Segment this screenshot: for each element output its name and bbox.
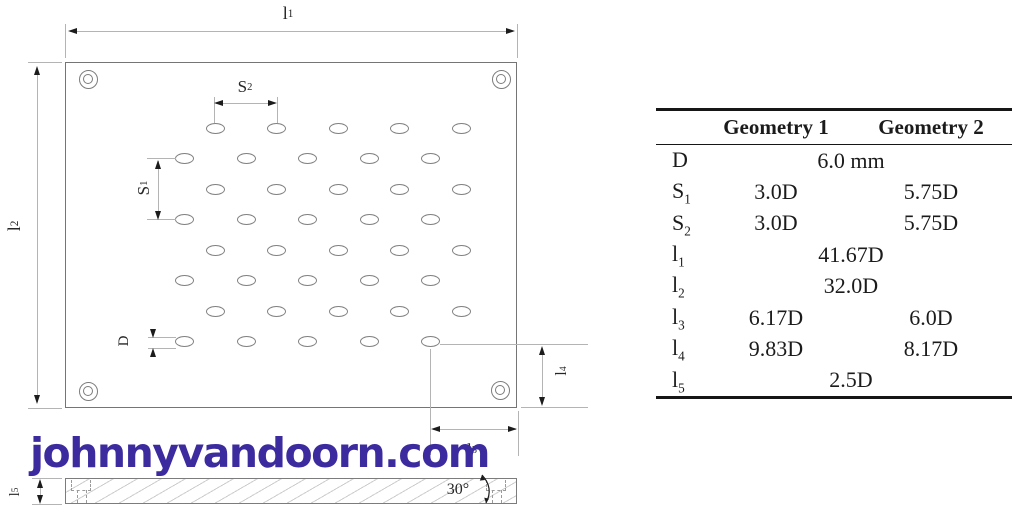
hole-ellipse: [360, 275, 379, 286]
row-label: l1: [656, 241, 716, 269]
table-row: l2 32.0D: [656, 270, 1012, 301]
table-row: l5 2.5D: [656, 365, 1012, 396]
table-row: S1 3.0D 5.75D: [656, 176, 1012, 207]
ext-line: [28, 408, 62, 409]
row-label: l2: [656, 272, 716, 300]
row-value-geometry2: 5.75D: [836, 210, 1012, 236]
table-header-geometry1: Geometry 1: [716, 115, 836, 140]
dim-label-d: D: [115, 326, 133, 356]
corner-hole-inner-circle: [83, 74, 93, 84]
row-value-geometry1: 6.17D: [716, 305, 836, 331]
corner-hole-inner-circle: [495, 385, 505, 395]
row-value-geometry1: 3.0D: [716, 179, 836, 205]
row-label: l4: [656, 335, 716, 363]
hole-ellipse: [360, 214, 379, 225]
corner-hole-bottom-left: [79, 382, 98, 401]
plate-top-view: [65, 62, 517, 408]
arrowhead: [37, 495, 43, 504]
counterbore-outline-left: [71, 480, 91, 491]
corner-hole-inner-circle: [496, 74, 506, 84]
dim-line-l1: [70, 31, 513, 32]
watermark-text: johnnyvandoorn.com: [30, 433, 489, 474]
table-header-geometry2: Geometry 2: [836, 115, 1012, 140]
table-row: l3 6.17D 6.0D: [656, 302, 1012, 333]
dim-line-s1: [158, 161, 159, 217]
row-value-shared: 6.0 mm: [716, 148, 1012, 174]
ext-line: [65, 24, 66, 58]
hole-ellipse: [329, 123, 348, 134]
arrowhead: [34, 66, 40, 75]
hole-ellipse: [237, 214, 256, 225]
arrowhead: [155, 211, 161, 220]
dim-label-l4: l4: [553, 356, 571, 386]
arrowhead: [68, 28, 77, 34]
hole-ellipse: [206, 123, 225, 134]
technical-figure: l1 l2 S2 S1 D l4 l3: [0, 0, 1024, 522]
table-row: l4 9.83D 8.17D: [656, 333, 1012, 364]
hole-ellipse: [390, 245, 409, 256]
row-label: l3: [656, 304, 716, 332]
hole-ellipse: [360, 153, 379, 164]
corner-hole-top-right: [492, 70, 511, 89]
ext-line: [521, 407, 588, 408]
row-label: D: [656, 147, 716, 175]
angle-label: 30°: [441, 482, 475, 498]
dim-label-s1: S1: [134, 173, 152, 203]
table-header-row: Geometry 1 Geometry 2: [656, 111, 1012, 144]
row-value-shared: 32.0D: [716, 273, 1012, 299]
dim-line-s2: [216, 103, 275, 104]
row-value-geometry2: 8.17D: [836, 336, 1012, 362]
ext-line: [440, 344, 588, 345]
arrowhead: [539, 397, 545, 406]
hole-ellipse: [390, 184, 409, 195]
ext-line: [147, 158, 176, 159]
dim-label-l5: l5: [6, 477, 24, 507]
arrowhead: [150, 329, 156, 338]
ext-line: [147, 219, 176, 220]
hole-ellipse: [206, 245, 225, 256]
row-value-geometry1: 9.83D: [716, 336, 836, 362]
table-row: S2 3.0D 5.75D: [656, 208, 1012, 239]
row-value-shared: 2.5D: [716, 367, 1012, 393]
hole-ellipse: [452, 184, 471, 195]
ext-line: [517, 24, 518, 58]
table-bottom-rule: [656, 396, 1012, 399]
row-value-geometry2: 5.75D: [836, 179, 1012, 205]
arrowhead: [37, 479, 43, 488]
hole-ellipse: [267, 245, 286, 256]
hole-ellipse: [452, 306, 471, 317]
row-label: l5: [656, 367, 716, 395]
row-label: S2: [656, 210, 716, 238]
corner-hole-inner-circle: [83, 386, 93, 396]
corner-hole-top-left: [79, 70, 98, 89]
arrowhead: [268, 100, 277, 106]
dim-line-l4: [542, 349, 543, 404]
dim-label-l2: l2: [5, 211, 23, 241]
hole-ellipse: [267, 184, 286, 195]
table-row: l1 41.67D: [656, 239, 1012, 270]
counterbore-hidden-line: [86, 490, 87, 503]
dim-label-l1: l1: [274, 4, 302, 22]
hole-ellipse: [329, 245, 348, 256]
arrowhead: [155, 160, 161, 169]
dim-label-s2: S2: [231, 77, 259, 95]
arrowhead: [506, 28, 515, 34]
ext-line: [28, 62, 62, 63]
hole-ellipse: [237, 153, 256, 164]
hole-ellipse: [206, 184, 225, 195]
hole-ellipse: [452, 123, 471, 134]
hole-ellipse: [206, 306, 225, 317]
corner-hole-bottom-right: [491, 381, 510, 400]
ext-line: [518, 411, 519, 456]
counterbore-hidden-line: [501, 490, 502, 503]
hole-ellipse: [390, 123, 409, 134]
row-value-geometry1: 3.0D: [716, 210, 836, 236]
dim-line-l2: [37, 69, 38, 402]
counterbore-hidden-line: [77, 490, 78, 503]
hole-ellipse: [267, 123, 286, 134]
row-label: S1: [656, 178, 716, 206]
hole-ellipse: [421, 153, 440, 164]
row-value-shared: 41.67D: [716, 242, 1012, 268]
row-value-geometry2: 6.0D: [836, 305, 1012, 331]
arrowhead: [214, 100, 223, 106]
table-row: D 6.0 mm: [656, 145, 1012, 176]
arrowhead: [34, 395, 40, 404]
arrowhead: [539, 346, 545, 355]
hole-ellipse: [452, 245, 471, 256]
arrowhead: [150, 348, 156, 357]
hole-ellipse: [390, 306, 409, 317]
geometry-table: Geometry 1 Geometry 2 D 6.0 mm S1 3.0D 5…: [656, 108, 1012, 399]
hole-ellipse: [329, 306, 348, 317]
hole-ellipse: [329, 184, 348, 195]
arrowhead: [508, 426, 517, 432]
